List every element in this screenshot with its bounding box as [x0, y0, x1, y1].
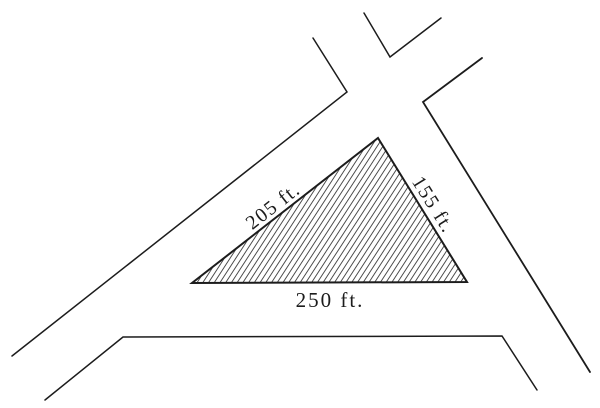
figure: 205 ft. 155 ft. 250 ft. — [0, 0, 600, 408]
side-label-south: 250 ft. — [296, 288, 365, 312]
street-edge-south-block — [45, 336, 537, 400]
street-edge-north-corner — [364, 13, 441, 57]
lot-plat-svg: 205 ft. 155 ft. 250 ft. — [0, 0, 600, 408]
